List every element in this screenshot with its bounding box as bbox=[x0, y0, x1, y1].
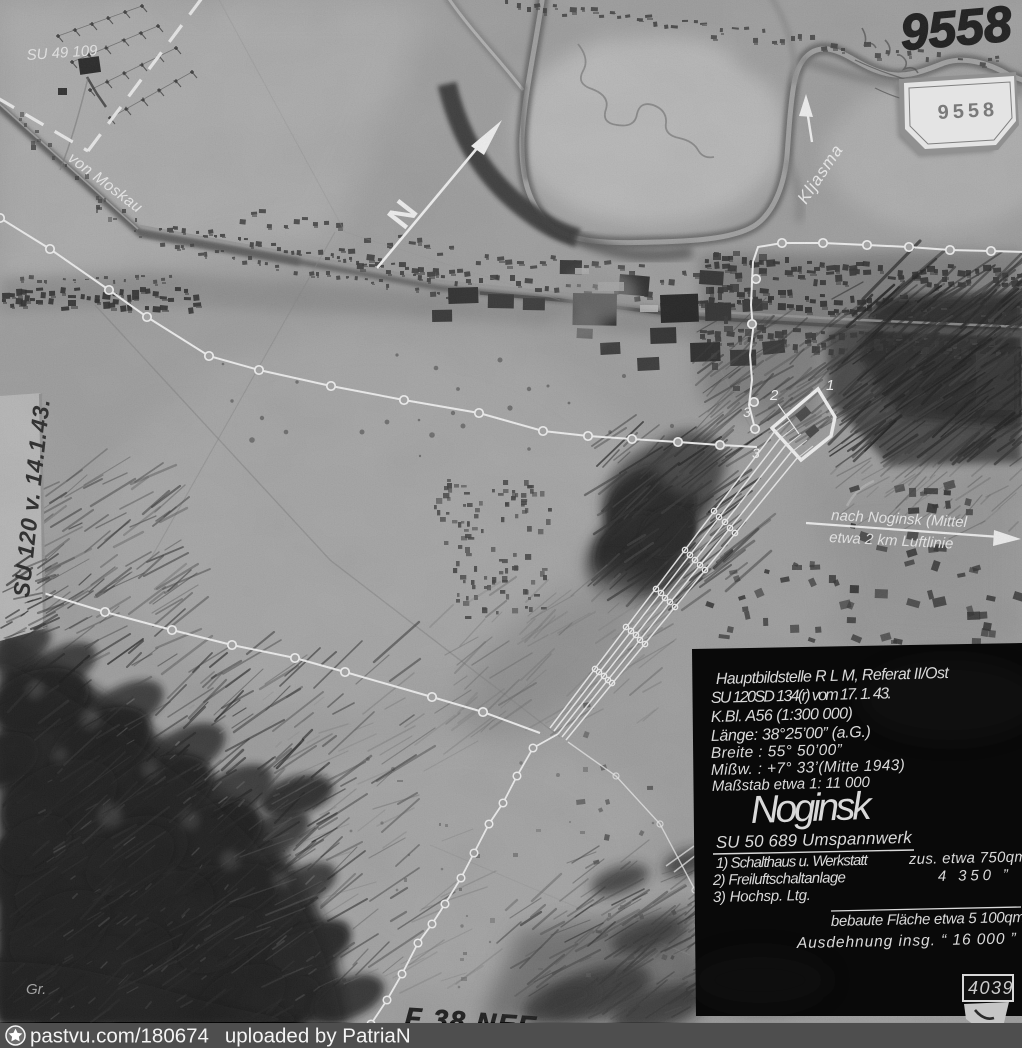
svg-text:pastvu.com/180674 uploaded by: pastvu.com/180674 uploaded by PatriaN bbox=[30, 1025, 411, 1048]
svg-text:Noginsk: Noginsk bbox=[750, 785, 875, 832]
svg-text:1) Schalthaus u. Werkstatt: 1) Schalthaus u. Werkstatt bbox=[716, 852, 869, 872]
svg-text:2) Freiluftschaltanlage: 2) Freiluftschaltanlage bbox=[712, 869, 846, 889]
svg-text:3) Hochsp. Ltg.: 3) Hochsp. Ltg. bbox=[713, 887, 811, 906]
svg-text:zus. etwa 750qm: zus. etwa 750qm bbox=[908, 849, 1022, 868]
svg-text:4039: 4039 bbox=[968, 978, 1014, 998]
svg-text:9558: 9558 bbox=[937, 99, 999, 124]
